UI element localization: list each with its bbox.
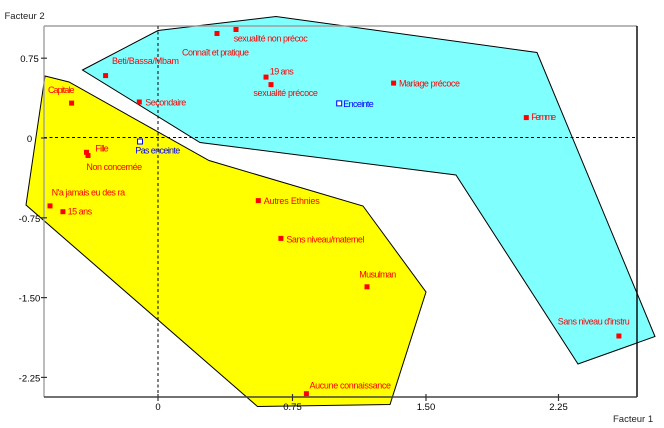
svg-text:-2.25: -2.25 bbox=[19, 373, 41, 384]
svg-text:-1.50: -1.50 bbox=[19, 294, 41, 305]
svg-text:Facteur 1: Facteur 1 bbox=[613, 414, 653, 425]
svg-text:-0.75: -0.75 bbox=[19, 214, 41, 225]
svg-text:Connaît et pratique: Connaît et pratique bbox=[182, 48, 249, 58]
svg-text:Facteur 2: Facteur 2 bbox=[5, 11, 45, 22]
svg-text:Beti/Bassa/Mbam: Beti/Bassa/Mbam bbox=[112, 56, 179, 66]
svg-text:0: 0 bbox=[27, 134, 32, 145]
svg-text:Enceinte: Enceinte bbox=[343, 99, 374, 109]
svg-text:Capitale: Capitale bbox=[48, 85, 75, 95]
svg-text:Sans niveau d'instru: Sans niveau d'instru bbox=[558, 317, 630, 327]
svg-text:sexualité précoce: sexualité précoce bbox=[253, 88, 318, 98]
svg-text:Fille: Fille bbox=[95, 144, 109, 154]
svg-text:Pas enceinte: Pas enceinte bbox=[135, 146, 180, 156]
svg-text:Autres Ethnies: Autres Ethnies bbox=[264, 196, 321, 206]
svg-text:Aucune connaissance: Aucune connaissance bbox=[310, 381, 392, 391]
svg-text:0.75: 0.75 bbox=[283, 402, 302, 413]
svg-text:N'a jamais eu des ra: N'a jamais eu des ra bbox=[52, 188, 126, 198]
svg-text:Musulman: Musulman bbox=[359, 270, 396, 280]
svg-text:1.50: 1.50 bbox=[417, 402, 436, 413]
svg-text:0: 0 bbox=[155, 402, 160, 413]
svg-text:Sans niveau/maternel: Sans niveau/maternel bbox=[286, 235, 364, 245]
svg-text:sexualité non précoc: sexualité non précoc bbox=[234, 34, 309, 44]
svg-text:0.75: 0.75 bbox=[20, 54, 39, 65]
svg-text:Femme: Femme bbox=[531, 112, 556, 122]
svg-text:15 ans: 15 ans bbox=[68, 207, 93, 217]
svg-text:2.25: 2.25 bbox=[549, 402, 568, 413]
svg-text:19 ans: 19 ans bbox=[270, 67, 295, 77]
svg-text:Non concernée: Non concernée bbox=[86, 162, 142, 172]
svg-text:Secondaire: Secondaire bbox=[145, 98, 186, 108]
svg-text:Mariage précoce: Mariage précoce bbox=[399, 79, 460, 89]
